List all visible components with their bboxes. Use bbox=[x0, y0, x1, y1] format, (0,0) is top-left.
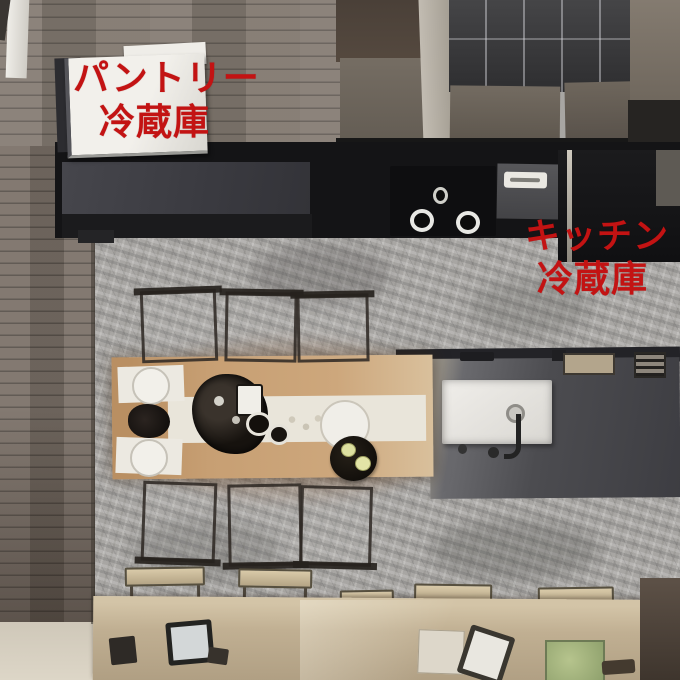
lower-floor-corner bbox=[0, 622, 96, 680]
bed-left-partial bbox=[336, 0, 426, 62]
stool-seat bbox=[238, 568, 312, 588]
kitchen-floorplan-rendering: パントリー 冷蔵庫 キッチン 冷蔵庫 bbox=[0, 0, 680, 680]
kitchen-sink bbox=[442, 380, 552, 444]
counter-right-gray-panel bbox=[656, 150, 680, 206]
burner-icon bbox=[433, 187, 448, 204]
green-mat bbox=[545, 640, 605, 680]
dinner-plate bbox=[132, 367, 170, 405]
bed-cushion bbox=[564, 81, 633, 142]
runner-floral-pattern bbox=[284, 410, 324, 434]
dining-chair bbox=[296, 293, 369, 362]
stool-seat bbox=[125, 566, 205, 586]
island-tray bbox=[563, 353, 615, 375]
fruit-bowl bbox=[330, 436, 377, 481]
counter-step bbox=[78, 230, 114, 243]
plaid-bedding bbox=[449, 0, 633, 92]
faucet-handle bbox=[488, 447, 499, 458]
dining-chair bbox=[140, 289, 218, 364]
bed-cushion bbox=[450, 85, 561, 143]
wall-door-strip bbox=[6, 0, 30, 78]
dining-chair bbox=[224, 291, 297, 362]
island-dish-rack bbox=[634, 352, 666, 378]
centerpiece-highlight bbox=[214, 396, 224, 406]
floor-boundary-line bbox=[91, 234, 95, 624]
pantry-counter-block bbox=[62, 162, 310, 218]
pantry-fridge-label: 冷蔵庫 bbox=[99, 105, 210, 141]
dark-cabinet-right bbox=[640, 578, 680, 680]
floor-shading bbox=[430, 520, 600, 580]
bed-left-cushion bbox=[340, 58, 426, 144]
sink-faucet bbox=[504, 414, 521, 459]
phone bbox=[207, 647, 229, 666]
bed-frame-right bbox=[630, 0, 680, 104]
lemon bbox=[341, 443, 356, 457]
centerpiece-highlight bbox=[232, 416, 240, 424]
appliance-label-text-smudge bbox=[510, 178, 540, 183]
dark-teapot bbox=[128, 404, 170, 438]
burner-icon bbox=[456, 211, 480, 234]
kitchen-label: キッチン bbox=[525, 220, 669, 255]
dark-desk-object bbox=[109, 636, 138, 666]
burner-icon bbox=[410, 209, 434, 232]
kitchen-fridge-label: 冷蔵庫 bbox=[537, 262, 648, 298]
small-desk-items bbox=[602, 659, 636, 675]
dining-chair bbox=[141, 481, 218, 564]
dining-chair bbox=[227, 483, 302, 566]
faucet-handle bbox=[458, 444, 467, 454]
island-rail-handle bbox=[460, 352, 494, 361]
dining-chair bbox=[299, 485, 373, 567]
pantry-label: パントリー bbox=[73, 61, 260, 97]
dinner-plate bbox=[130, 439, 168, 477]
lemon bbox=[355, 456, 371, 471]
